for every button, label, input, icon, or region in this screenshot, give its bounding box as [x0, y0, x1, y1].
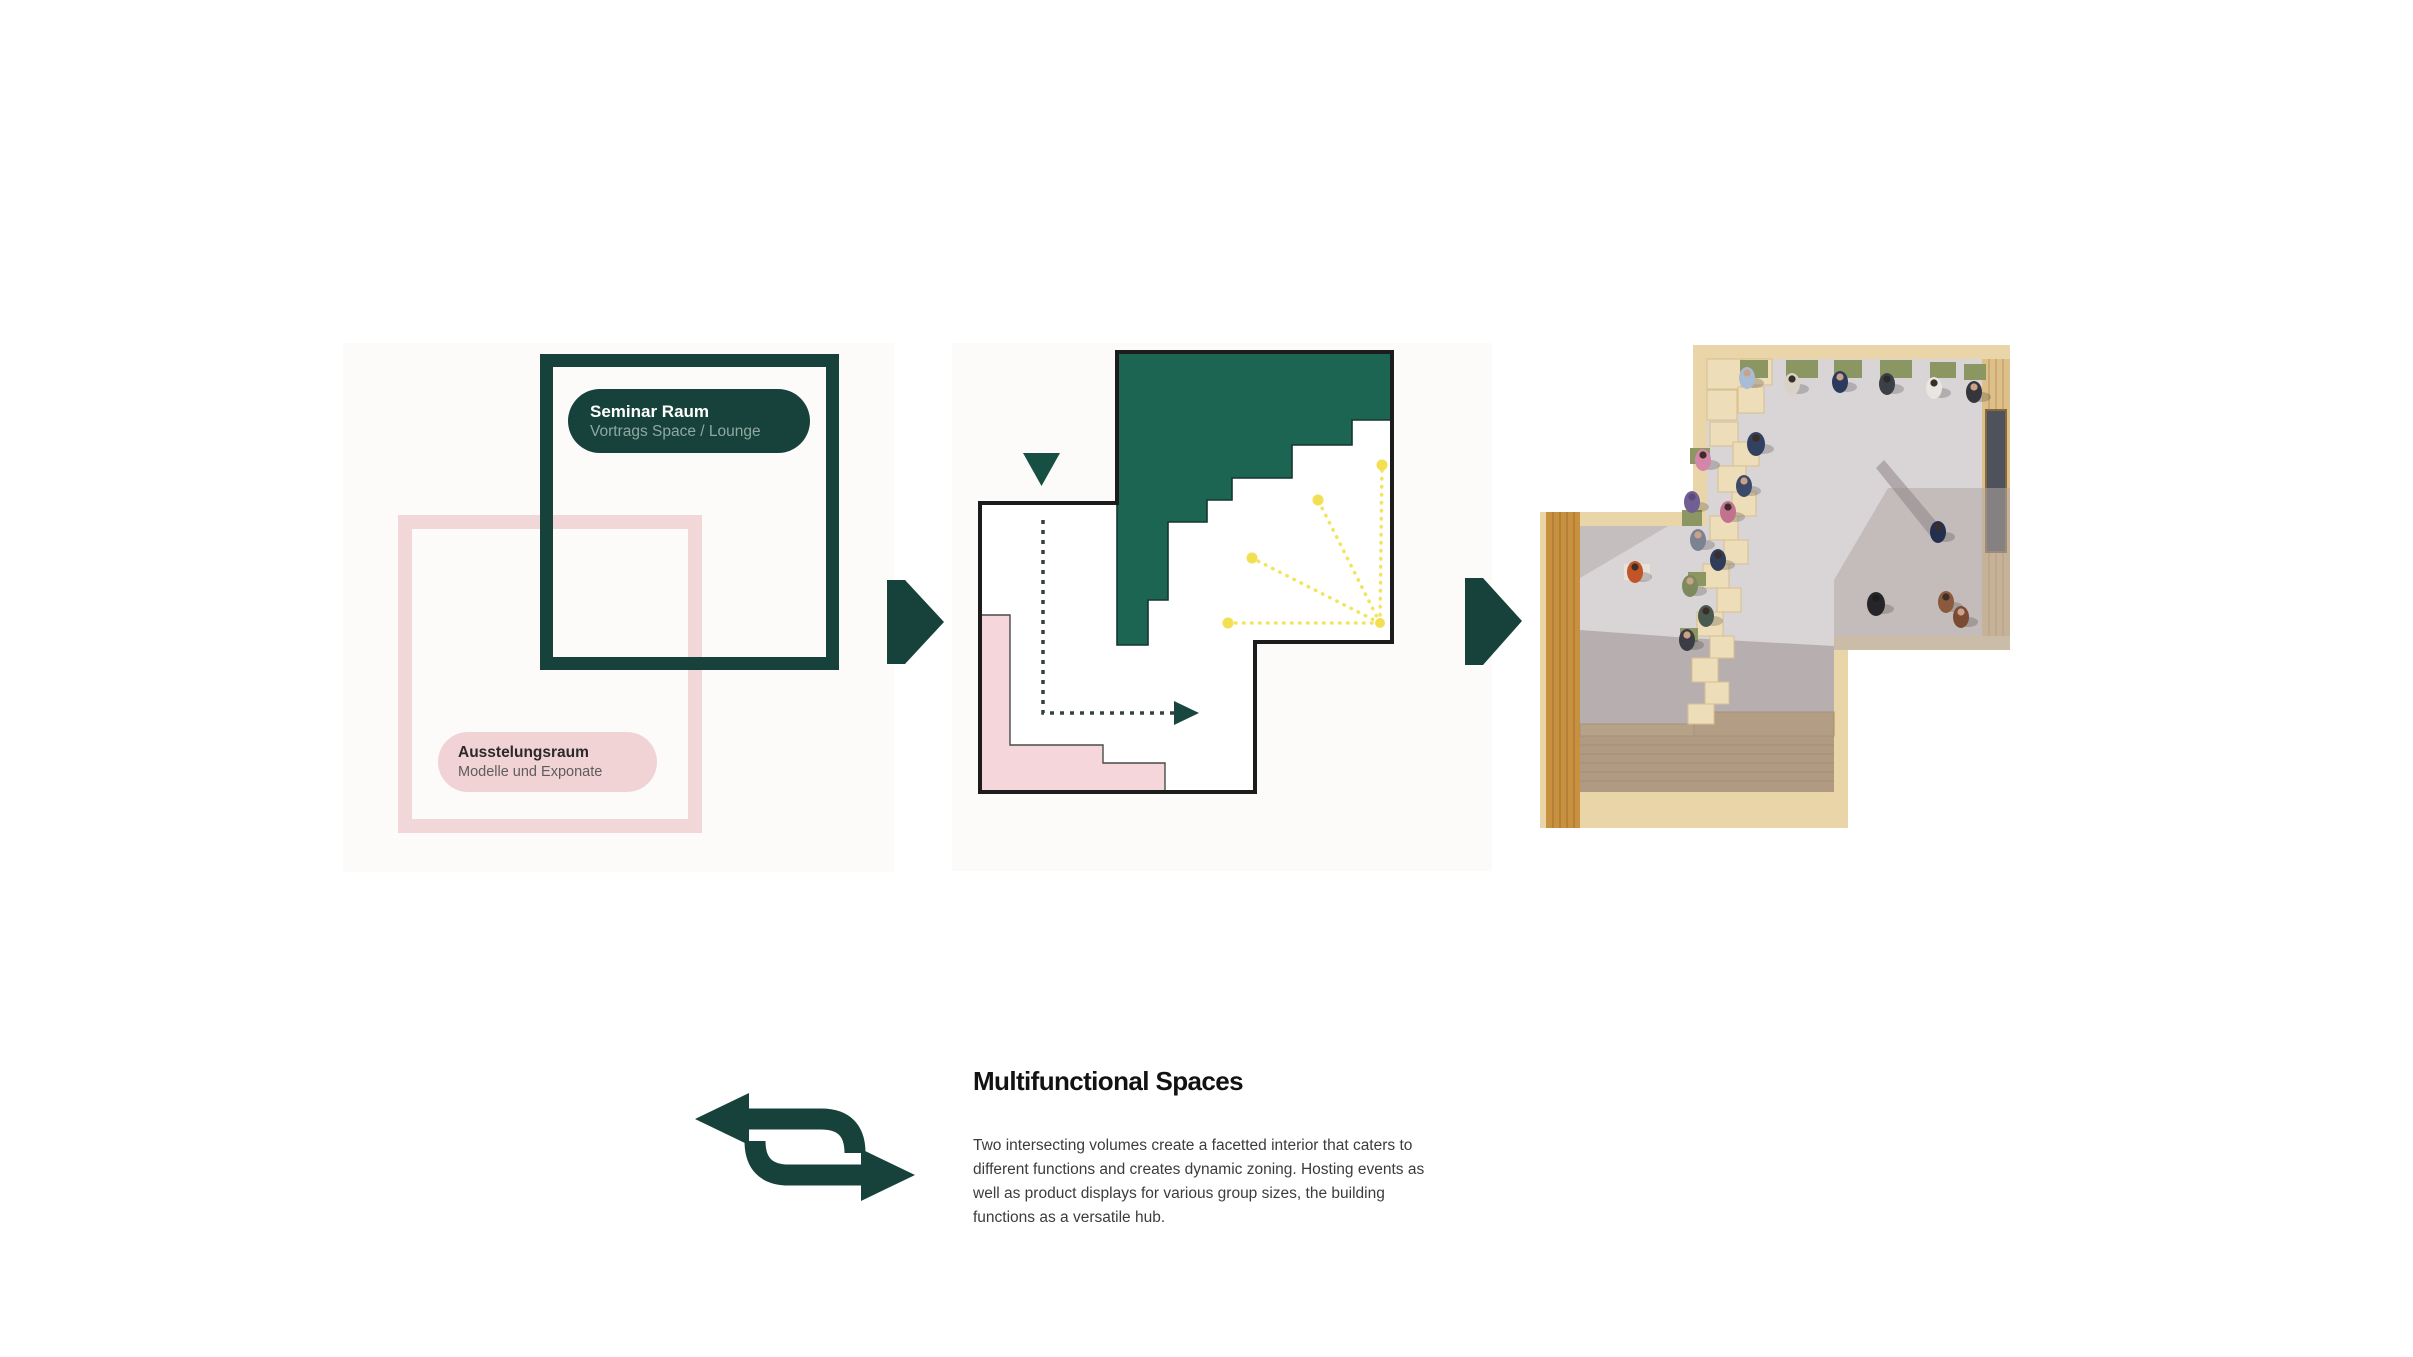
render-top-view: [1540, 340, 2012, 832]
arrow-right-icon: [1465, 578, 1522, 665]
seminar-room-title: Seminar Raum: [590, 401, 810, 422]
exhibition-room-label: Ausstelungsraum Modelle und Exponate: [438, 732, 657, 792]
section-title: Multifunctional Spaces: [973, 1066, 1243, 1097]
section-body: Two intersecting volumes create a facett…: [973, 1134, 1451, 1230]
page: Seminar Raum Vortrags Space / Lounge Aus…: [0, 0, 2413, 1357]
seminar-room-label: Seminar Raum Vortrags Space / Lounge: [568, 389, 810, 453]
exhibition-room-title: Ausstelungsraum: [458, 743, 657, 763]
render-left-wall: [1546, 512, 1580, 828]
arrow-right-icon: [887, 580, 944, 664]
seminar-room-subtitle: Vortrags Space / Lounge: [590, 422, 810, 441]
exhibition-room-subtitle: Modelle und Exponate: [458, 763, 657, 781]
zoning-plan-diagram: [952, 343, 1492, 873]
swap-arrows-icon: [695, 1086, 915, 1208]
triangle-down-icon: [1023, 453, 1060, 486]
